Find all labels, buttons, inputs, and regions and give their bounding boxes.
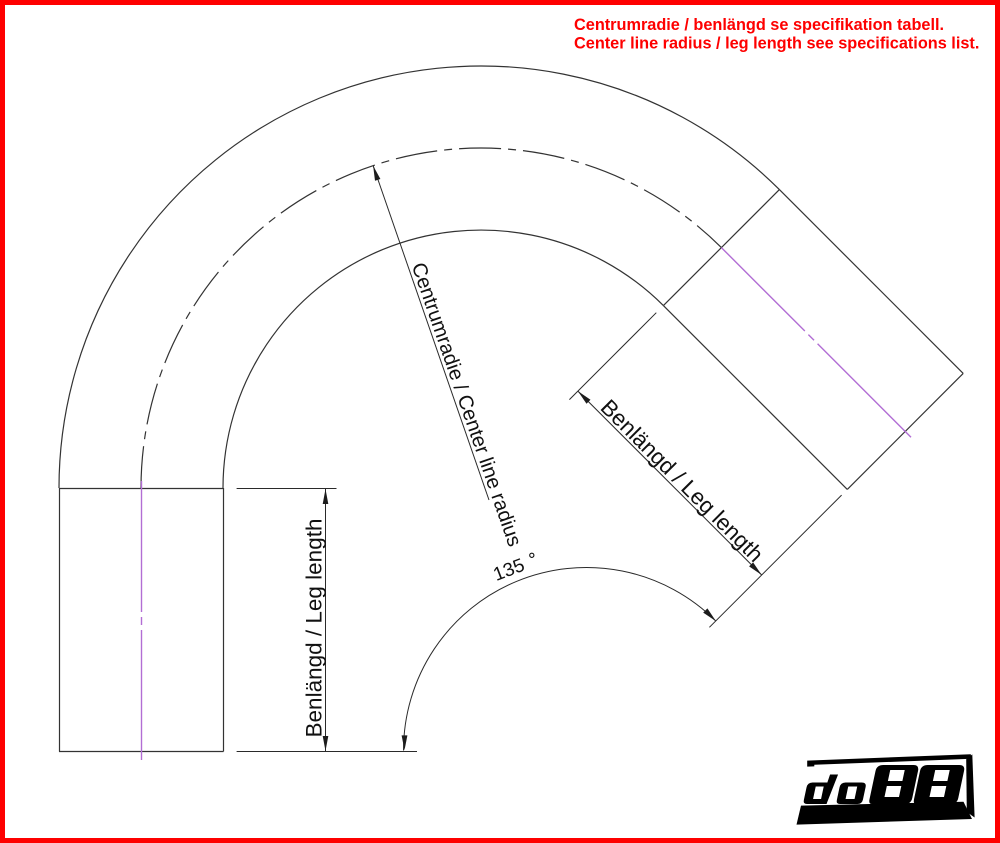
svg-text:Centrumradie / benlängd se spe: Centrumradie / benlängd se specifikation… [574,16,944,34]
svg-text:Center line radius / leg lengt: Center line radius / leg length see spec… [574,35,979,53]
svg-text:Benlängd / Leg length: Benlängd / Leg length [302,519,327,738]
